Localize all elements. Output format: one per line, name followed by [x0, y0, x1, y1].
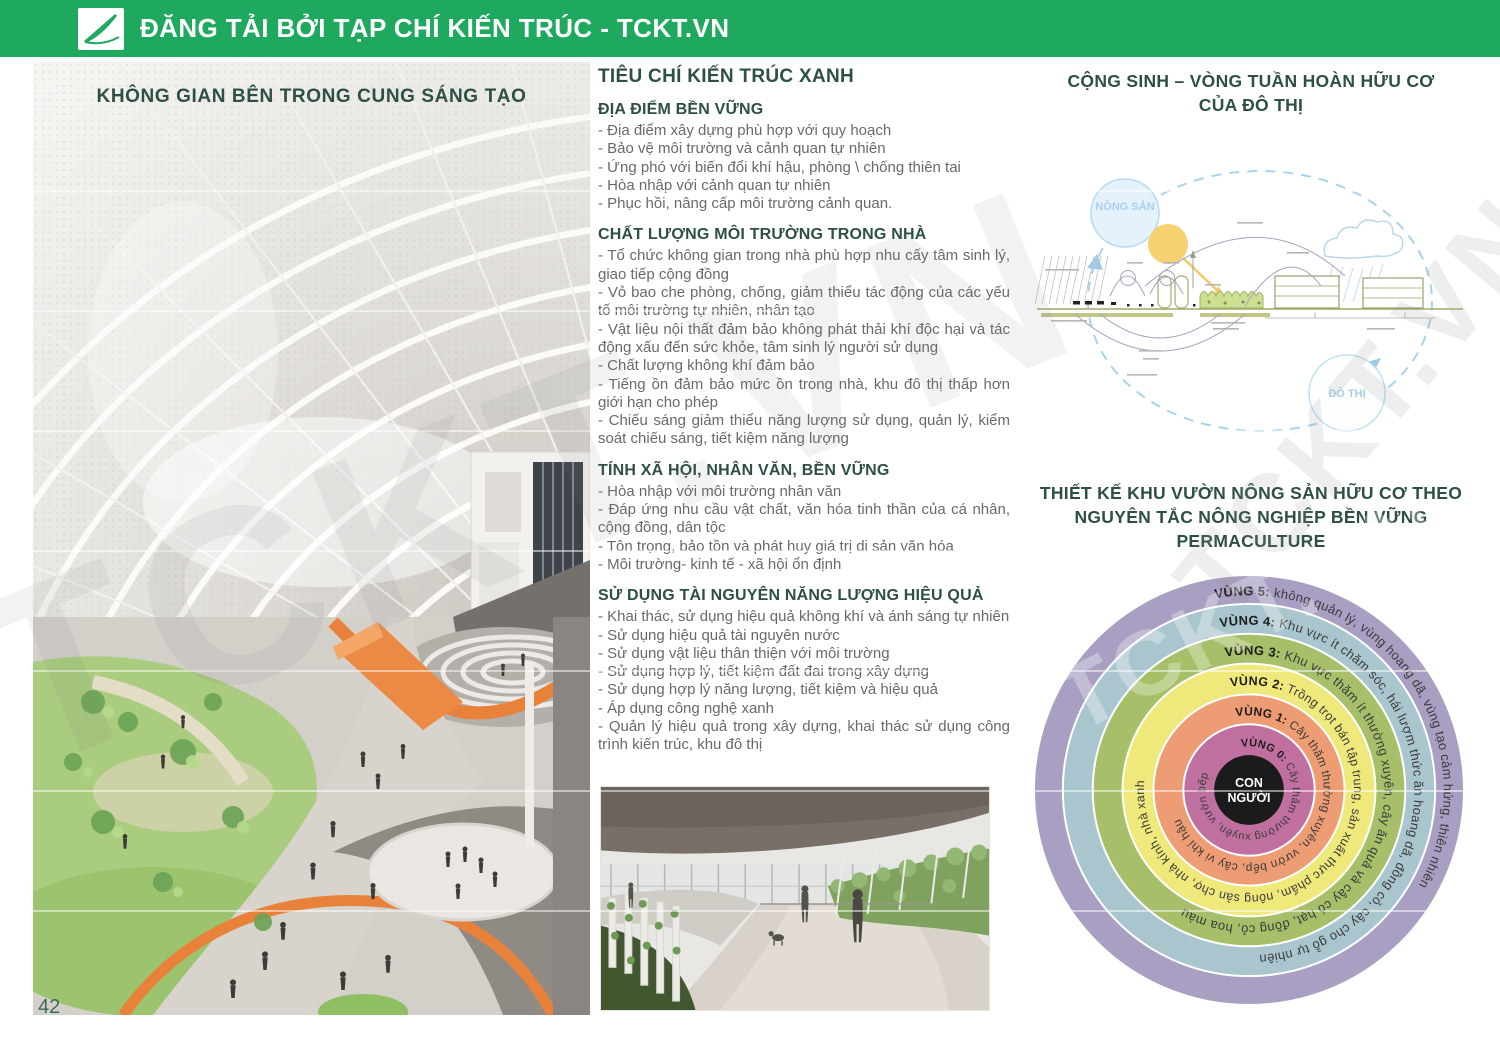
criteria-title: TIÊU CHÍ KIẾN TRÚC XANH — [598, 66, 1010, 88]
criteria-item: - Ứng phó với biến đổi khí hậu, phòng \ … — [598, 159, 1010, 177]
sun-icon — [1148, 224, 1188, 264]
criteria-item: - Đáp ứng nhu cầu vật chất, văn hóa tinh… — [598, 501, 1010, 538]
criteria-item: - Chiếu sáng giảm thiểu năng lượng sử dụ… — [598, 412, 1010, 449]
criteria-item: - Sử dụng hợp lý, tiết kiệm đất đai tron… — [598, 663, 1010, 681]
node-city-label: ĐÔ THỊ — [1328, 387, 1365, 400]
criteria-item: - Tiếng ồn đảm bảo mức ồn trong nhà, khu… — [598, 376, 1010, 413]
interior-render-figure: KHÔNG GIAN BÊN TRONG CUNG SÁNG TẠO — [33, 62, 590, 1015]
criteria-item: - Sử dụng hiệu quả tài nguyên nước — [598, 627, 1010, 645]
permaculture-zones-diagram: VÙNG 5: không quản lý, vùng hoang dã, vù… — [1030, 571, 1468, 1009]
criteria-sections: ĐỊA ĐIỂM BỀN VỮNG- Địa điểm xây dựng phù… — [598, 101, 1010, 755]
left-figure-caption: KHÔNG GIAN BÊN TRONG CUNG SÁNG TẠO — [33, 86, 590, 108]
criteria-item: - Sử dụng hợp lý năng lượng, tiết kiệm v… — [598, 681, 1010, 699]
criteria-item: - Bảo vệ môi trường và cảnh quan tự nhiê… — [598, 140, 1010, 158]
criteria-item: - Hòa nhập với cảnh quan tự nhiên — [598, 177, 1010, 195]
node-farm-label: NÔNG SẢN — [1095, 200, 1154, 213]
walkway-render-figure — [600, 786, 990, 1011]
symbiosis-diagram: NÔNG SẢN ĐÔ THỊ — [1015, 136, 1485, 458]
criteria-section-heading: CHẤT LƯỢNG MÔI TRƯỜNG TRONG NHÀ — [598, 226, 1010, 244]
page-number: 42 — [38, 996, 60, 1019]
criteria-item: - Áp dụng công nghệ xanh — [598, 700, 1010, 718]
criteria-section-heading: ĐỊA ĐIỂM BỀN VỮNG — [598, 101, 1010, 119]
criteria-section-heading: SỬ DỤNG TÀI NGUYÊN NĂNG LƯỢNG HIỆU QUẢ — [598, 587, 1010, 605]
header-title: ĐĂNG TẢI BỞI TẠP CHÍ KIẾN TRÚC - TCKT.VN — [140, 13, 729, 44]
dome-interior-illustration — [33, 62, 590, 1015]
permaculture-title-line3: PERMACULTURE — [1012, 529, 1490, 553]
criteria-item: - Sử dụng vật liệu thân thiện với môi tr… — [598, 645, 1010, 663]
symbiosis-title-line2: CỦA ĐÔ THỊ — [1012, 94, 1490, 118]
symbiosis-title: CỘNG SINH – VÒNG TUẦN HOÀN HỮU CƠ CỦA ĐÔ… — [1012, 70, 1490, 117]
criteria-item: - Hòa nhập với môi trường nhân văn — [598, 483, 1010, 501]
permaculture-title-line2: NGUYÊN TẮC NÔNG NGHIỆP BỀN VỮNG — [1012, 505, 1490, 529]
criteria-item: - Vỏ bao che phòng, chống, giảm thiểu tá… — [598, 284, 1010, 321]
green-criteria-column: TIÊU CHÍ KIẾN TRÚC XANH ĐỊA ĐIỂM BỀN VỮN… — [598, 66, 1010, 755]
criteria-item: - Chất lượng không khí đảm bảo — [598, 357, 1010, 375]
criteria-item: - Môi trường- kinh tế - xã hội ổn định — [598, 556, 1010, 574]
symbiosis-title-line1: CỘNG SINH – VÒNG TUẦN HOÀN HỮU CƠ — [1012, 70, 1490, 94]
tckt-logo-icon — [78, 8, 124, 50]
criteria-item: - Vật liệu nội thất đảm bảo không phát t… — [598, 321, 1010, 358]
walkway-illustration — [601, 787, 989, 1010]
criteria-item: - Quản lý hiệu quả trong xây dựng, khai … — [598, 718, 1010, 755]
permaculture-title: THIẾT KẾ KHU VƯỜN NÔNG SẢN HỮU CƠ THEO N… — [1012, 481, 1490, 553]
criteria-item: - Địa điểm xây dựng phù hợp với quy hoạc… — [598, 122, 1010, 140]
criteria-item: - Khai thác, sử dụng hiệu quả không khí … — [598, 608, 1010, 626]
criteria-item: - Tôn trọng, bảo tồn và phát huy giá trị… — [598, 538, 1010, 556]
criteria-section-heading: TÍNH XÃ HỘI, NHÂN VĂN, BỀN VỮNG — [598, 462, 1010, 480]
header-banner: ĐĂNG TẢI BỞI TẠP CHÍ KIẾN TRÚC - TCKT.VN — [0, 0, 1500, 57]
criteria-item: - Phục hồi, nâng cấp môi trường cảnh qua… — [598, 195, 1010, 213]
permaculture-title-line1: THIẾT KẾ KHU VƯỜN NÔNG SẢN HỮU CƠ THEO — [1012, 481, 1490, 505]
criteria-item: - Tổ chức không gian trong nhà phù hợp n… — [598, 247, 1010, 284]
